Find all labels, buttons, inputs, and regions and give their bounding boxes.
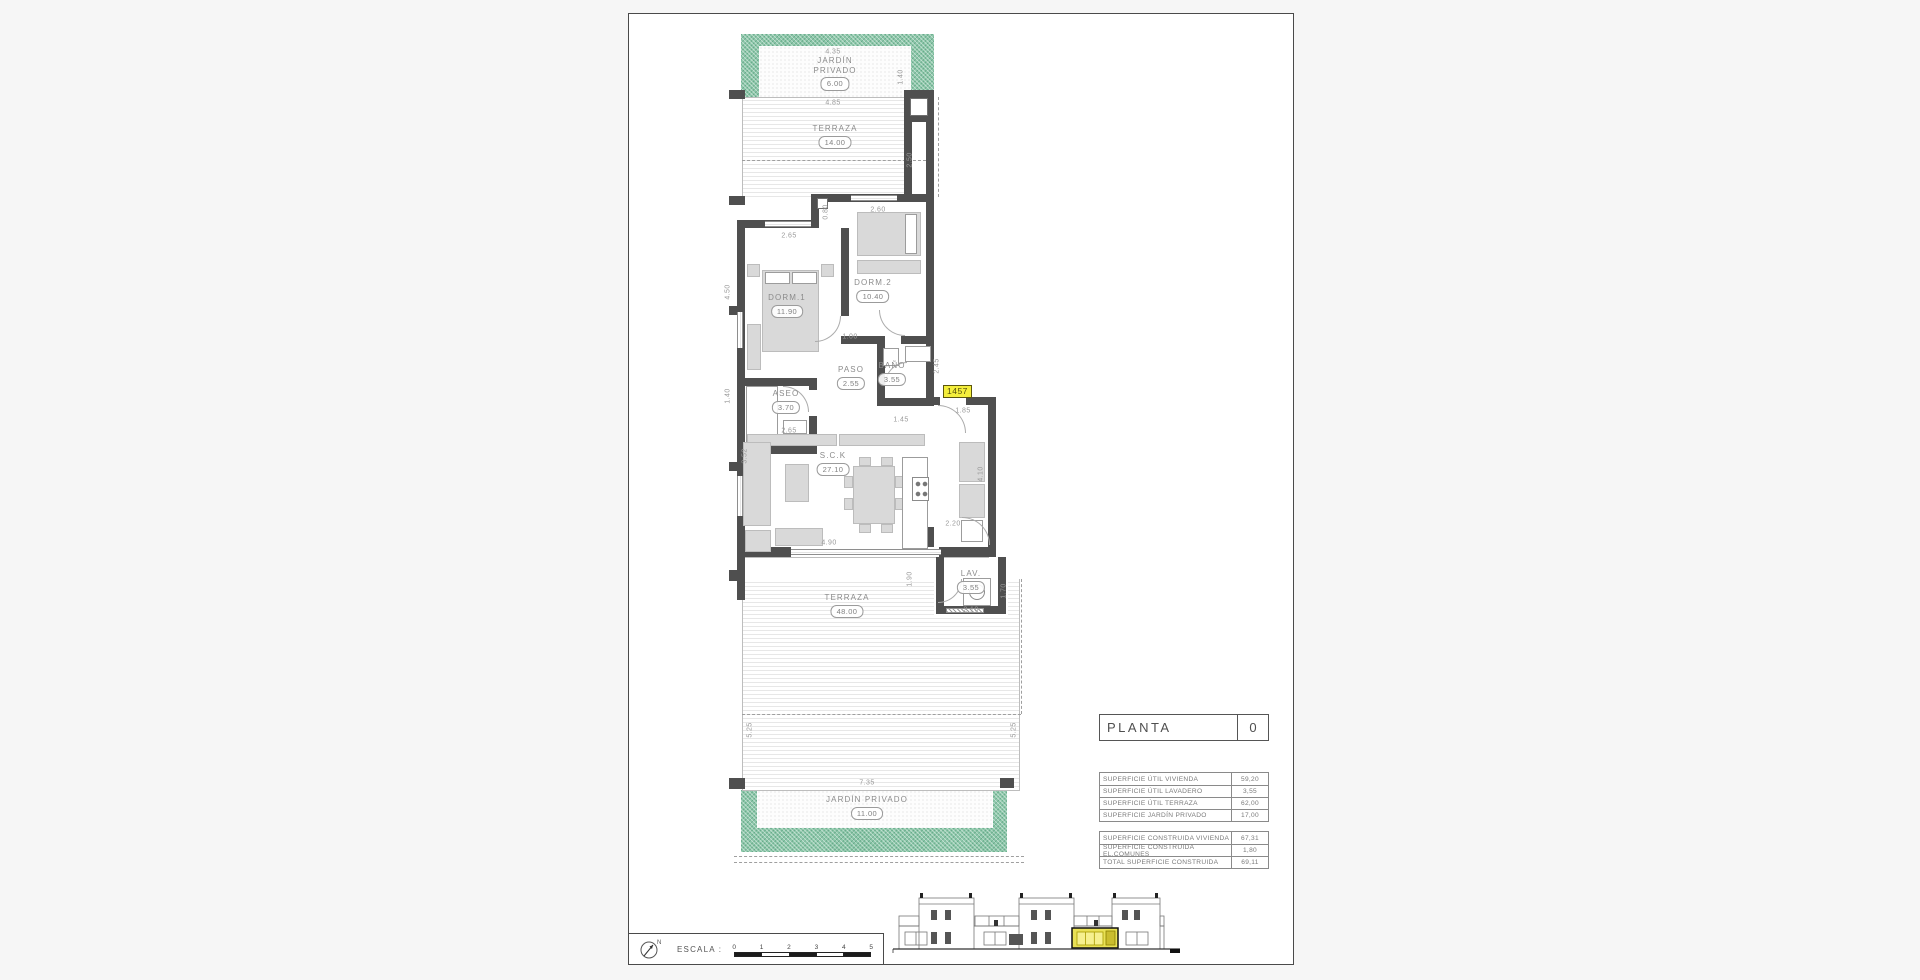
tower-volume [1112,893,1160,949]
table-row-value: 69,11 [1231,857,1268,868]
furniture-block [839,434,925,446]
boundary-line [1019,579,1020,791]
dimension-text: 4.90 [821,540,836,547]
scale-tick-label: 3 [815,944,819,951]
room-name: ASEO [772,389,800,399]
dashed-line [1021,579,1022,714]
dimension-text: 1.90 [907,571,914,586]
dimension-text: 2.50 [907,152,914,167]
table-row-value: 17,00 [1231,810,1268,821]
scale-box: N ESCALA : 012345 [629,933,884,964]
furniture-block [853,466,895,524]
dimension-tick [1000,778,1014,788]
furniture-block [844,498,853,510]
wall-segment [939,547,996,557]
dimension-text: 2.45 [934,358,941,373]
table-row: SUPERFICIE CONSTRUIDA EL.COMUNES1,80 [1100,844,1268,856]
room-name: DORM.2 [854,278,892,288]
table-row-label: SUPERFICIE ÚTIL VIVIENDA [1100,773,1231,785]
window [765,221,811,227]
room-name: TERRAZA [824,593,869,603]
table-row: SUPERFICIE JARDÍN PRIVADO17,00 [1100,809,1268,821]
room-name: DORM.1 [768,293,806,303]
dimension-text: 1.40 [898,69,905,84]
unit-number-badge: 1457 [943,385,972,398]
furniture-w [905,214,917,254]
door-swing [962,517,990,545]
planta-value: 0 [1237,715,1268,740]
table-row-label: SUPERFICIE CONSTRUIDA EL.COMUNES [1100,845,1231,856]
table-row-label: SUPERFICIE ÚTIL TERRAZA [1100,798,1231,809]
boundary-line [742,97,905,98]
room-area-value: 3.55 [957,581,985,595]
room-name: TERRAZA [812,124,857,134]
wall-segment [737,220,745,600]
table-row-value: 62,00 [1231,798,1268,809]
room-label: PASO2.55 [837,365,865,390]
dimension-text: 1.45 [893,417,908,424]
room-label: DORM.210.40 [854,278,892,303]
table-row-value: 1,80 [1231,845,1268,856]
table-row-value: 67,31 [1231,832,1268,844]
dimension-text: 2.60 [870,207,885,214]
dashed-line [742,160,926,161]
furniture-block [745,530,771,552]
scale-segment [789,953,816,956]
room-area-value: 10.40 [857,290,890,304]
scale-ticks: 012345 [734,944,871,952]
wall-segment [901,336,934,344]
window [791,549,941,555]
dimension-text: 4.35 [825,49,840,56]
areas-table-construida: SUPERFICIE CONSTRUIDA VIVIENDA67,31SUPER… [1099,831,1269,869]
dimension-text: 1.85 [955,408,970,415]
room-name: LAV. [957,569,985,579]
furniture-hob [912,477,929,501]
scale-segments [734,952,871,957]
table-row-label: SUPERFICIE ÚTIL LAVADERO [1100,786,1231,797]
dimension-text: 2.10 [963,607,978,614]
table-row-label: SUPERFICIE JARDÍN PRIVADO [1100,810,1231,821]
scale-segment [735,953,761,956]
dimension-text: 4.50 [725,284,732,299]
dimension-text: 3.52 [742,448,749,463]
room-area-value: 6.00 [821,77,849,91]
wall-segment [988,397,996,557]
room-label: LAV.3.55 [957,569,985,594]
dimension-text: 2.65 [781,428,796,435]
room-label: TERRAZA48.00 [824,593,869,618]
planta-label: PLANTA [1100,715,1237,740]
boundary-line [742,579,743,791]
room-area-value: 48.00 [831,605,864,619]
north-compass-icon: N [639,937,663,961]
room-name: PRIVADO [813,66,856,76]
table-row-value: 59,20 [1231,773,1268,785]
dimension-text: 1.40 [725,388,732,403]
table-row: SUPERFICIE CONSTRUIDA VIVIENDA67,31 [1100,832,1268,844]
scale-segment [816,953,843,956]
room-area-value: 27.10 [817,463,850,477]
plan-sheet: 4.351.404.852.500.802.602.654.501.002.45… [628,13,1294,965]
dimension-tick [729,90,745,99]
table-row-value: 3,55 [1231,786,1268,797]
furniture-block [747,264,760,277]
title-block: PLANTA 0 [1099,714,1269,741]
furniture-w [902,457,928,549]
scale-segment [761,953,788,956]
room-label: S.C.K27.10 [817,451,850,476]
room-area-value: 3.55 [878,373,906,387]
scale-tick-label: 4 [842,944,846,951]
dimension-text: 4.10 [978,466,985,481]
tower-volume [1019,893,1074,949]
room-area-value: 14.00 [819,136,852,150]
dashed-line [938,97,939,197]
room-label: DORM.111.90 [768,293,806,318]
furniture-block [859,524,871,533]
furniture-block [821,264,834,277]
furniture-block [747,324,761,370]
dimension-tick [729,196,745,205]
table-row: SUPERFICIE ÚTIL TERRAZA62,00 [1100,797,1268,809]
table-row: SUPERFICIE ÚTIL VIVIENDA59,20 [1100,773,1268,785]
furniture-block [881,457,893,466]
room-label: BAÑO3.55 [878,361,906,386]
room-area-value: 2.55 [837,377,865,391]
room-area-value: 11.00 [851,807,883,821]
dimension-text: 4.85 [825,100,840,107]
room-name: JARDÍN PRIVADO [826,795,908,805]
boundary-line [742,790,1020,791]
furniture-w [905,346,931,362]
room-label: ASEO3.70 [772,389,800,414]
room-label: JARDÍN PRIVADO11.00 [826,795,908,820]
dimension-tick [729,570,745,581]
dimension-text: 7.35 [859,780,874,787]
drawing-canvas: 4.351.404.852.500.802.602.654.501.002.45… [0,0,1920,980]
svg-text:N: N [657,940,661,946]
scale-label: ESCALA : [677,945,722,954]
room-name: BAÑO [878,361,906,371]
door-swing [879,310,905,336]
table-row-label: TOTAL SUPERFICIE CONSTRUIDA [1100,857,1231,868]
dimension-text: 1.70 [1001,583,1008,598]
table-row-label: SUPERFICIE CONSTRUIDA VIVIENDA [1100,832,1231,844]
table-row: TOTAL SUPERFICIE CONSTRUIDA69,11 [1100,856,1268,868]
wall-segment [926,397,940,405]
dashed-line [742,714,1021,715]
furniture-w [792,272,817,284]
wall-segment [841,228,849,316]
furniture-block [881,524,893,533]
furniture-block [844,476,853,488]
furniture-block [857,260,921,274]
scale-tick-label: 1 [760,944,764,951]
furniture-block [859,457,871,466]
building-elevation [889,886,1184,966]
room-area-value: 11.90 [771,305,803,319]
dashed-line [734,862,1024,863]
scale-segment [843,953,870,956]
dimension-text: 0.80 [823,204,830,219]
furniture-block [785,464,809,502]
door-swing [815,316,841,342]
dimension-text: 2.20 [945,521,960,528]
dimension-tick [729,778,745,789]
boundary-line [737,557,989,558]
furniture-block [775,528,823,546]
table-row: SUPERFICIE ÚTIL LAVADERO3,55 [1100,785,1268,797]
wall-niche [910,98,928,116]
window [737,476,743,516]
wall-segment [904,116,934,122]
wall-segment [745,378,811,386]
dimension-text: 5.25 [747,722,754,737]
boundary-line [742,97,743,197]
room-name: PASO [837,365,865,375]
furniture-w [765,272,790,284]
wall-segment [809,378,817,390]
dimension-text: 1.00 [842,334,857,341]
room-name: JARDÍN [813,56,856,66]
dashed-line [734,856,1024,857]
scale-tick-label: 0 [732,944,736,951]
furniture-block [959,484,985,518]
scale-tick-label: 5 [869,944,873,951]
dimension-text: 5.25 [1011,722,1018,737]
areas-table-util: SUPERFICIE ÚTIL VIVIENDA59,20SUPERFICIE … [1099,772,1269,822]
room-area-value: 3.70 [772,401,800,415]
scale-tick-label: 2 [787,944,791,951]
room-name: S.C.K [817,451,850,461]
scale-bar: 012345 [734,944,874,957]
room-label: JARDÍNPRIVADO6.00 [813,56,856,91]
dimension-text: 2.65 [781,233,796,240]
window [851,195,897,201]
room-label: TERRAZA14.00 [812,124,857,149]
window [737,312,743,348]
